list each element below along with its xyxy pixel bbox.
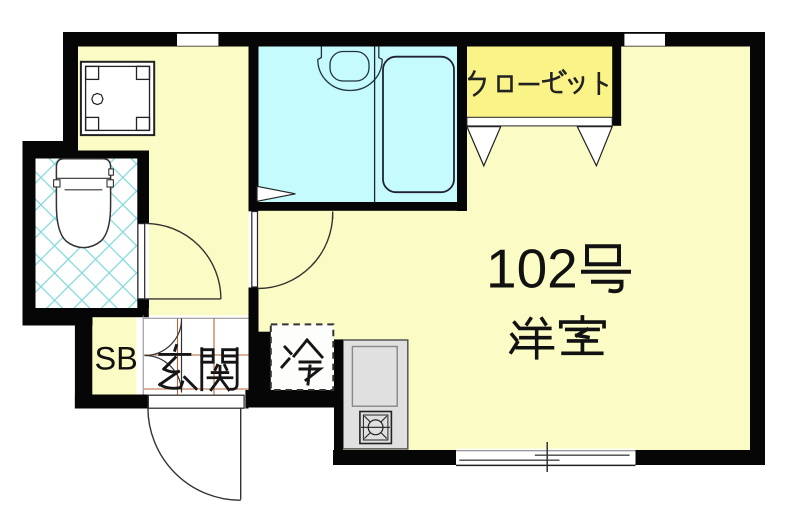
- svg-text:102: 102: [486, 238, 578, 300]
- svg-text:SB: SB: [95, 341, 138, 377]
